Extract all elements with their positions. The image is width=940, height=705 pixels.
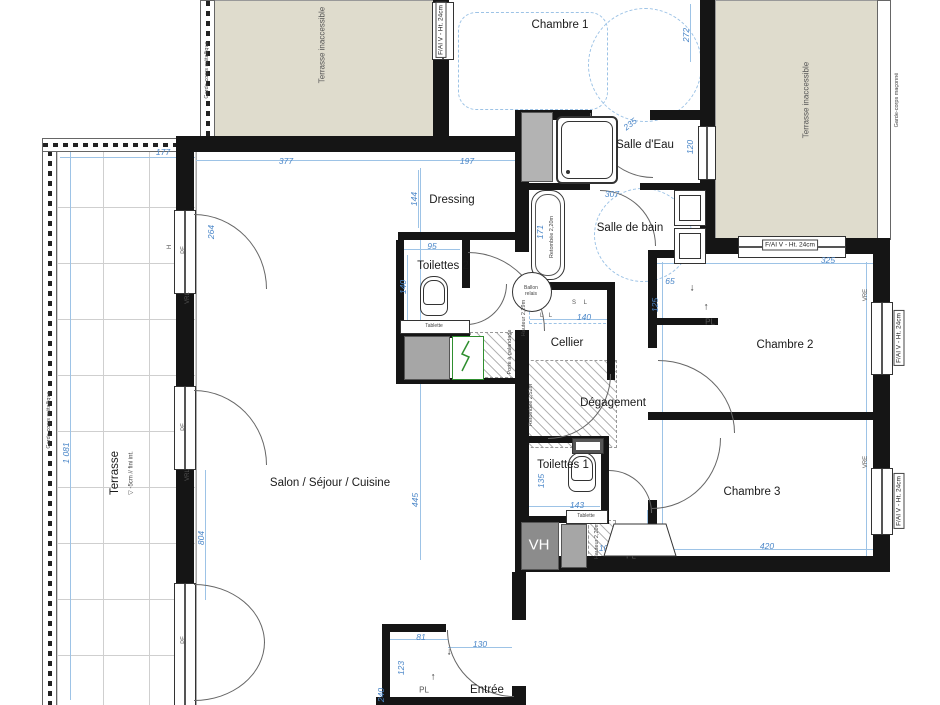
code-pf-1: PF (181, 246, 187, 254)
dim-135: 135 (536, 474, 546, 488)
wall (398, 232, 516, 240)
door-arc-toilettes1 (609, 470, 652, 513)
dim-144: 144 (409, 192, 419, 206)
dim-125: 125 (650, 298, 660, 312)
arrow-down-chambre2: ↓ (690, 283, 695, 294)
sink-double-1 (674, 190, 706, 226)
dim-420: 420 (760, 541, 774, 551)
note-garde-corps-maconne: Garde-corps maçonné (894, 73, 900, 128)
wall (607, 282, 615, 380)
railing-top (42, 138, 197, 152)
room-label-salle-deau: Salle d'Eau (616, 139, 674, 151)
zigzag-icon (453, 337, 479, 375)
wall (700, 238, 742, 254)
door-arc-chambre2 (658, 360, 735, 433)
wall (650, 110, 702, 120)
wc-toilettes2 (420, 276, 448, 316)
room-label-chambre1: Chambre 1 (532, 19, 589, 31)
closet-chambre3 (600, 522, 680, 558)
room-label-chambre3: Chambre 3 (724, 486, 781, 498)
dim-307: 307 (605, 189, 619, 199)
dim-197: 197 (460, 156, 474, 166)
door-arc-pf2 (194, 390, 267, 465)
dim-line (60, 157, 195, 158)
room-label-terrasse: Terrasse (109, 451, 121, 495)
dim-95: 95 (427, 241, 436, 251)
window-tag-top-left: F/AI V - Ht. 24cm (436, 2, 447, 58)
code-h: H (167, 245, 173, 249)
railing-right-terrace (877, 0, 891, 240)
wall (382, 624, 446, 632)
arrow-down-entree: ↓ (447, 647, 452, 658)
code-pf-2: PF (181, 423, 187, 431)
wall (376, 697, 522, 705)
room-label-chambre2: Chambre 2 (757, 339, 814, 351)
duct-box (521, 112, 553, 182)
arrow-up-chambre2: ↑ (704, 302, 709, 313)
sink-double-2 (674, 228, 706, 264)
code-pl-chambre2: PL (705, 318, 715, 327)
dim-65: 65 (665, 276, 674, 286)
terrasse-level-note: ▽ -5cm // fini int. (128, 451, 135, 495)
wc-toilettes1 (568, 452, 596, 492)
dim-143: 143 (570, 500, 584, 510)
wall (528, 183, 590, 190)
dim-140-t2: 140 (398, 280, 408, 294)
dim-123: 123 (396, 661, 406, 675)
note-hauteur-229: Hauteur 2,29m (521, 300, 527, 336)
room-label-degagement: Dégagement (580, 397, 646, 409)
door-arc-pf1 (194, 214, 267, 289)
label-seche-linge: S L (572, 300, 590, 306)
shower-tray (556, 116, 618, 184)
dim-140-ll: 140 (577, 312, 591, 322)
duct-box (404, 336, 450, 380)
room-label-toilettes2: Toilettes 2 (417, 260, 469, 272)
terrace-inaccessible-right (715, 0, 878, 240)
wall (843, 238, 890, 254)
door-arc-chambre3 (652, 438, 721, 509)
code-vrl-2: VRL (185, 469, 191, 481)
code-pf-3: PF (181, 636, 187, 644)
dim-1081: 1 081 (61, 442, 71, 463)
wall (873, 373, 890, 470)
guide-line (70, 152, 71, 700)
floor-plan: Chambre 1 Salle d'Eau Salle de bain Dres… (0, 0, 940, 705)
code-vrl-1: VRL (185, 292, 191, 304)
note-porte-galandage: Porte à galandage (507, 330, 513, 375)
note-garde-corps-metallique-left: Garde-corps métallique (46, 391, 52, 448)
electrical-panel (452, 336, 484, 380)
dim-804: 804 (196, 531, 206, 545)
wall (396, 336, 404, 380)
wall (176, 292, 194, 388)
dim-171: 171 (535, 225, 545, 239)
wall (176, 468, 194, 585)
code-pl-entree: PL (419, 686, 429, 695)
note-retombee-252: Retombée 2,52m (528, 384, 534, 426)
dim-177: 177 (156, 147, 170, 157)
code-vre-1: VRE (863, 289, 869, 301)
code-vh: VH (529, 537, 550, 554)
window-tag-chambre3-right: F/AI V - Ht. 24cm (894, 473, 905, 529)
dim-272: 272 (681, 28, 691, 42)
note-tablette-t1: Tablette (577, 513, 595, 519)
room-label-terrasse-inaccessible-tl: Terrasse inaccessible (318, 7, 327, 83)
window-chambre2-right (871, 302, 893, 375)
guide-line (866, 262, 867, 556)
dim-line (520, 506, 600, 507)
wall (873, 250, 890, 304)
note-garde-corps-metallique-tl: Garde-corps métallique (204, 41, 210, 98)
duct-box (561, 524, 587, 568)
wall (640, 183, 702, 190)
room-label-terrasse-inaccessible-r: Terrasse inaccessible (802, 62, 811, 138)
window-tag-chambre2-top: F/AI V - Ht. 24cm (762, 240, 818, 251)
room-label-salle-de-bain: Salle de bain (597, 222, 664, 234)
dim-264: 264 (206, 225, 216, 239)
door-arc-pf3b (194, 642, 265, 701)
room-label-salon: Salon / Séjour / Cuisine (270, 477, 390, 489)
dim-325: 325 (821, 255, 835, 265)
dim-240: 240 (376, 688, 386, 702)
dim-445: 445 (410, 493, 420, 507)
room-label-cellier: Cellier (551, 337, 584, 349)
dim-81: 81 (416, 632, 425, 642)
room-label-entree: Entrée (470, 684, 504, 696)
wall (873, 533, 890, 572)
note-tablette-t2: Tablette (425, 323, 443, 329)
arrow-up-entree: ↑ (431, 672, 436, 683)
window-salle-deau (698, 126, 716, 180)
dim-120: 120 (685, 140, 695, 154)
door-arc-pf3a (194, 584, 265, 643)
wall (176, 136, 522, 152)
note-retombee-220: Retombée 2,20m (549, 216, 555, 258)
room-label-toilettes1: Toilettes 1 (537, 459, 589, 471)
wall (512, 572, 526, 620)
wall (176, 152, 194, 212)
dim-377: 377 (279, 156, 293, 166)
code-vre-2: VRE (863, 456, 869, 468)
room-label-dressing: Dressing (429, 194, 474, 206)
label-lave-linge: L L (540, 313, 554, 319)
dim-130: 130 (473, 639, 487, 649)
sink-toilettes1 (572, 438, 604, 454)
window-tag-chambre2-right: F/AI V - Ht. 24cm (894, 310, 905, 366)
window-salon-3 (174, 583, 196, 705)
note-ballon-relais: Ballon relais (518, 285, 544, 297)
window-chambre3-right (871, 468, 893, 535)
